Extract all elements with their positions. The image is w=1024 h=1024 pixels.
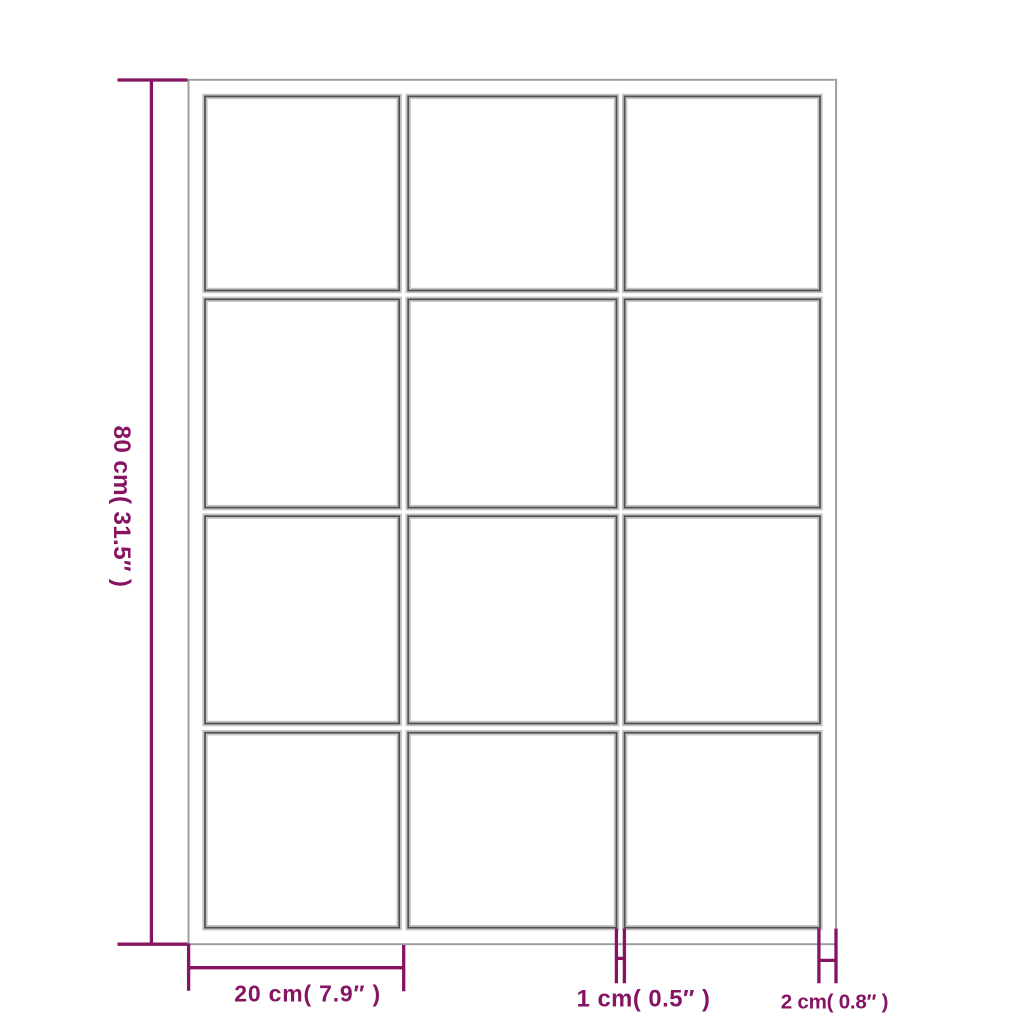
svg-text:2 cm( 0.8″ ): 2 cm( 0.8″ )	[781, 990, 889, 1013]
svg-text:1 cm( 0.5″ ): 1 cm( 0.5″ )	[577, 985, 711, 1012]
svg-text:80 cm( 31.5″ ): 80 cm( 31.5″ )	[108, 426, 135, 588]
svg-text:20 cm( 7.9″ ): 20 cm( 7.9″ )	[234, 980, 381, 1006]
